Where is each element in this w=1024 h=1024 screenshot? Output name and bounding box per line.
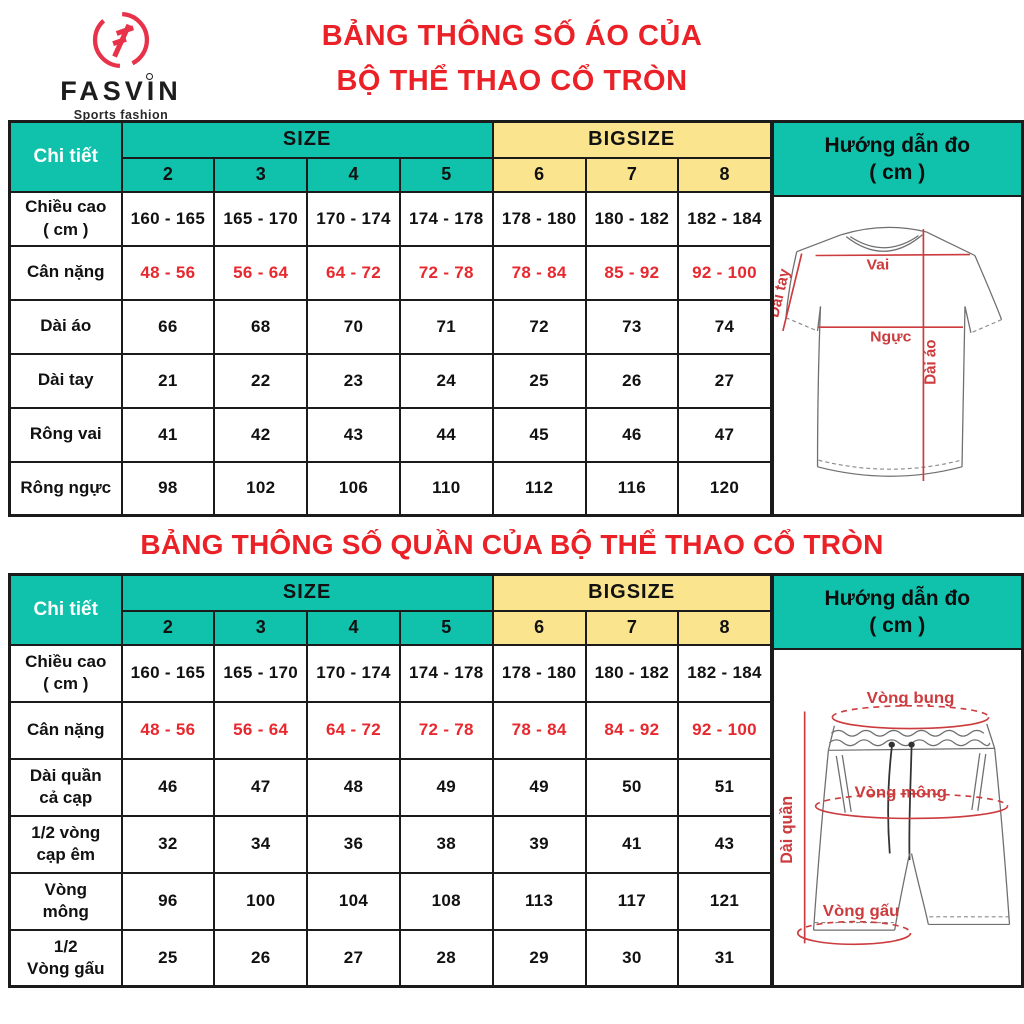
cell-value: 24 xyxy=(400,354,493,408)
cell-value: 43 xyxy=(678,816,771,873)
size-column-header: 8 xyxy=(678,158,771,192)
cell-value: 170 - 174 xyxy=(307,192,400,246)
cell-value: 174 - 178 xyxy=(400,645,493,702)
pants-size-table: Chi tiết SIZE BIGSIZE 2345678 Chiều cao … xyxy=(8,573,773,988)
size-group-header: SIZE xyxy=(122,122,493,158)
row-label: Cân nặng xyxy=(10,246,122,300)
cell-value: 64 - 72 xyxy=(307,246,400,300)
cell-value: 180 - 182 xyxy=(586,192,679,246)
drawstring-toggle xyxy=(908,742,914,748)
hem-label: Vòng gấu xyxy=(822,902,899,920)
corner-header-chi-tiet: Chi tiết xyxy=(10,122,122,192)
size-column-header: 2 xyxy=(122,611,215,645)
cell-value: 100 xyxy=(214,873,307,930)
cell-value: 25 xyxy=(122,930,215,987)
cell-value: 85 - 92 xyxy=(586,246,679,300)
cell-value: 121 xyxy=(678,873,771,930)
cell-value: 56 - 64 xyxy=(214,246,307,300)
size-column-header: 4 xyxy=(307,611,400,645)
cell-value: 102 xyxy=(214,462,307,516)
group-header-row: Chi tiết SIZE BIGSIZE xyxy=(10,575,772,611)
table-row: Dài áo66687071727374 xyxy=(10,300,772,354)
cell-value: 49 xyxy=(400,759,493,816)
cell-value: 117 xyxy=(586,873,679,930)
cell-value: 43 xyxy=(307,408,400,462)
table-row: Dài quần cả cạp46474849495051 xyxy=(10,759,772,816)
pants-diagram-area: Vòng bụng Vòng mông Dài quần Vòng gấu xyxy=(774,650,1021,985)
pants-measurement-diagram: Vòng bụng Vòng mông Dài quần Vòng gấu xyxy=(774,650,1021,985)
cell-value: 36 xyxy=(307,816,400,873)
shoulder-measure-line xyxy=(815,255,969,256)
cell-value: 48 xyxy=(307,759,400,816)
table-row: Rông ngực98102106110112116120 xyxy=(10,462,772,516)
pants-table-title: BẢNG THÔNG SỐ QUẦN CỦA BỘ THỂ THAO CỔ TR… xyxy=(0,517,1024,573)
shirt-size-table: Chi tiết SIZE BIGSIZE 2345678 Chiều cao … xyxy=(8,120,773,517)
guide-header-line1: Hướng dẫn đo xyxy=(774,132,1021,159)
page-header: FASVIN Sports fashion BẢNG THÔNG SỐ ÁO C… xyxy=(0,0,1024,120)
sleeve-length-label: Dài tay xyxy=(774,267,794,319)
shirt-measure-guide: Hướng dẫn đo ( cm ) xyxy=(771,120,1024,517)
row-label: Cân nặng xyxy=(10,702,122,759)
guide-header: Hướng dẫn đo ( cm ) xyxy=(774,576,1021,650)
cell-value: 23 xyxy=(307,354,400,408)
row-label: Dài tay xyxy=(10,354,122,408)
brand-logo: FASVIN Sports fashion xyxy=(36,4,206,122)
cell-value: 45 xyxy=(493,408,586,462)
cell-value: 39 xyxy=(493,816,586,873)
cell-value: 66 xyxy=(122,300,215,354)
size-column-header: 4 xyxy=(307,158,400,192)
table-row: 1/2 vòng cạp êm32343638394143 xyxy=(10,816,772,873)
cell-value: 73 xyxy=(586,300,679,354)
table-row: Dài tay21222324252627 xyxy=(10,354,772,408)
table-row: Cân nặng48 - 5656 - 6464 - 7272 - 7878 -… xyxy=(10,702,772,759)
cell-value: 72 - 78 xyxy=(400,246,493,300)
cell-value: 68 xyxy=(214,300,307,354)
cell-value: 92 - 100 xyxy=(678,246,771,300)
cell-value: 92 - 100 xyxy=(678,702,771,759)
row-label: 1/2 Vòng gấu xyxy=(10,930,122,987)
brand-tagline: Sports fashion xyxy=(74,108,169,122)
table-row: 1/2 Vòng gấu25262728293031 xyxy=(10,930,772,987)
cell-value: 44 xyxy=(400,408,493,462)
size-column-header: 7 xyxy=(586,158,679,192)
cell-value: 112 xyxy=(493,462,586,516)
cell-value: 160 - 165 xyxy=(122,645,215,702)
cell-value: 64 - 72 xyxy=(307,702,400,759)
cell-value: 178 - 180 xyxy=(493,645,586,702)
row-label: Rông ngực xyxy=(10,462,122,516)
cell-value: 32 xyxy=(122,816,215,873)
table-row: Chiều cao ( cm )160 - 165165 - 170170 - … xyxy=(10,192,772,246)
brand-logo-icon xyxy=(85,4,157,76)
cell-value: 178 - 180 xyxy=(493,192,586,246)
hip-label: Vòng mông xyxy=(854,784,946,802)
cell-value: 84 - 92 xyxy=(586,702,679,759)
guide-header: Hướng dẫn đo ( cm ) xyxy=(774,123,1021,197)
size-column-header: 5 xyxy=(400,611,493,645)
cell-value: 50 xyxy=(586,759,679,816)
cell-value: 41 xyxy=(586,816,679,873)
cell-value: 70 xyxy=(307,300,400,354)
cell-value: 21 xyxy=(122,354,215,408)
cell-value: 78 - 84 xyxy=(493,702,586,759)
group-header-row: Chi tiết SIZE BIGSIZE xyxy=(10,122,772,158)
cell-value: 72 - 78 xyxy=(400,702,493,759)
cell-value: 113 xyxy=(493,873,586,930)
guide-header-line2: ( cm ) xyxy=(774,159,1021,186)
cell-value: 182 - 184 xyxy=(678,192,771,246)
size-group-header: SIZE xyxy=(122,575,493,611)
chest-label: Ngực xyxy=(870,329,912,346)
cell-value: 71 xyxy=(400,300,493,354)
cell-value: 49 xyxy=(493,759,586,816)
cell-value: 31 xyxy=(678,930,771,987)
cell-value: 34 xyxy=(214,816,307,873)
cell-value: 96 xyxy=(122,873,215,930)
guide-header-line2: ( cm ) xyxy=(774,612,1021,639)
corner-header-chi-tiet: Chi tiết xyxy=(10,575,122,645)
row-label: Vòng mông xyxy=(10,873,122,930)
cell-value: 182 - 184 xyxy=(678,645,771,702)
table-row: Rông vai41424344454647 xyxy=(10,408,772,462)
row-label: Dài quần cả cạp xyxy=(10,759,122,816)
bigsize-group-header: BIGSIZE xyxy=(493,575,771,611)
cell-value: 47 xyxy=(214,759,307,816)
cell-value: 30 xyxy=(586,930,679,987)
shirt-diagram-area: Vai Ngực Dài áo Dài tay xyxy=(774,197,1021,514)
size-chart-page: FASVIN Sports fashion BẢNG THÔNG SỐ ÁO C… xyxy=(0,0,1024,1024)
pants-section: Chi tiết SIZE BIGSIZE 2345678 Chiều cao … xyxy=(0,573,1024,988)
cell-value: 165 - 170 xyxy=(214,645,307,702)
cell-value: 106 xyxy=(307,462,400,516)
cell-value: 56 - 64 xyxy=(214,702,307,759)
drawstring-toggle xyxy=(888,742,894,748)
cell-value: 26 xyxy=(214,930,307,987)
cell-value: 120 xyxy=(678,462,771,516)
cell-value: 22 xyxy=(214,354,307,408)
row-label: 1/2 vòng cạp êm xyxy=(10,816,122,873)
table-row: Chiều cao ( cm )160 - 165165 - 170170 - … xyxy=(10,645,772,702)
cell-value: 38 xyxy=(400,816,493,873)
bigsize-group-header: BIGSIZE xyxy=(493,122,771,158)
cell-value: 48 - 56 xyxy=(122,246,215,300)
cell-value: 160 - 165 xyxy=(122,192,215,246)
pants-length-label: Dài quần xyxy=(777,796,795,864)
cell-value: 46 xyxy=(122,759,215,816)
row-label: Rông vai xyxy=(10,408,122,462)
shirt-length-label: Dài áo xyxy=(922,339,939,384)
cell-value: 72 xyxy=(493,300,586,354)
cell-value: 98 xyxy=(122,462,215,516)
cell-value: 108 xyxy=(400,873,493,930)
brand-i-ring xyxy=(146,73,153,80)
cell-value: 28 xyxy=(400,930,493,987)
size-column-header: 7 xyxy=(586,611,679,645)
cell-value: 51 xyxy=(678,759,771,816)
size-column-header: 8 xyxy=(678,611,771,645)
size-column-header: 6 xyxy=(493,158,586,192)
row-label: Chiều cao ( cm ) xyxy=(10,192,122,246)
row-label: Chiều cao ( cm ) xyxy=(10,645,122,702)
cell-value: 48 - 56 xyxy=(122,702,215,759)
size-column-header: 3 xyxy=(214,158,307,192)
cell-value: 41 xyxy=(122,408,215,462)
shirt-measurement-diagram: Vai Ngực Dài áo Dài tay xyxy=(774,197,1021,514)
cell-value: 110 xyxy=(400,462,493,516)
cell-value: 180 - 182 xyxy=(586,645,679,702)
shoulder-label: Vai xyxy=(866,257,889,274)
waist-label: Vòng bụng xyxy=(866,689,954,707)
cell-value: 29 xyxy=(493,930,586,987)
size-column-header: 5 xyxy=(400,158,493,192)
cell-value: 42 xyxy=(214,408,307,462)
cell-value: 26 xyxy=(586,354,679,408)
size-column-header: 6 xyxy=(493,611,586,645)
row-label: Dài áo xyxy=(10,300,122,354)
cell-value: 78 - 84 xyxy=(493,246,586,300)
cell-value: 27 xyxy=(678,354,771,408)
cell-value: 74 xyxy=(678,300,771,354)
shirt-section: Chi tiết SIZE BIGSIZE 2345678 Chiều cao … xyxy=(0,120,1024,517)
size-column-header: 2 xyxy=(122,158,215,192)
cell-value: 170 - 174 xyxy=(307,645,400,702)
size-number-row: 2345678 xyxy=(10,611,772,645)
cell-value: 174 - 178 xyxy=(400,192,493,246)
table-row: Vòng mông96100104108113117121 xyxy=(10,873,772,930)
pants-measure-guide: Hướng dẫn đo ( cm ) xyxy=(771,573,1024,988)
size-column-header: 3 xyxy=(214,611,307,645)
guide-header-line1: Hướng dẫn đo xyxy=(774,585,1021,612)
cell-value: 116 xyxy=(586,462,679,516)
cell-value: 165 - 170 xyxy=(214,192,307,246)
cell-value: 46 xyxy=(586,408,679,462)
cell-value: 104 xyxy=(307,873,400,930)
table-row: Cân nặng48 - 5656 - 6464 - 7272 - 7878 -… xyxy=(10,246,772,300)
cell-value: 27 xyxy=(307,930,400,987)
size-number-row: 2345678 xyxy=(10,158,772,192)
brand-name: FASVIN xyxy=(60,78,182,105)
waist-measure-ellipse xyxy=(832,706,988,717)
cell-value: 25 xyxy=(493,354,586,408)
cell-value: 47 xyxy=(678,408,771,462)
